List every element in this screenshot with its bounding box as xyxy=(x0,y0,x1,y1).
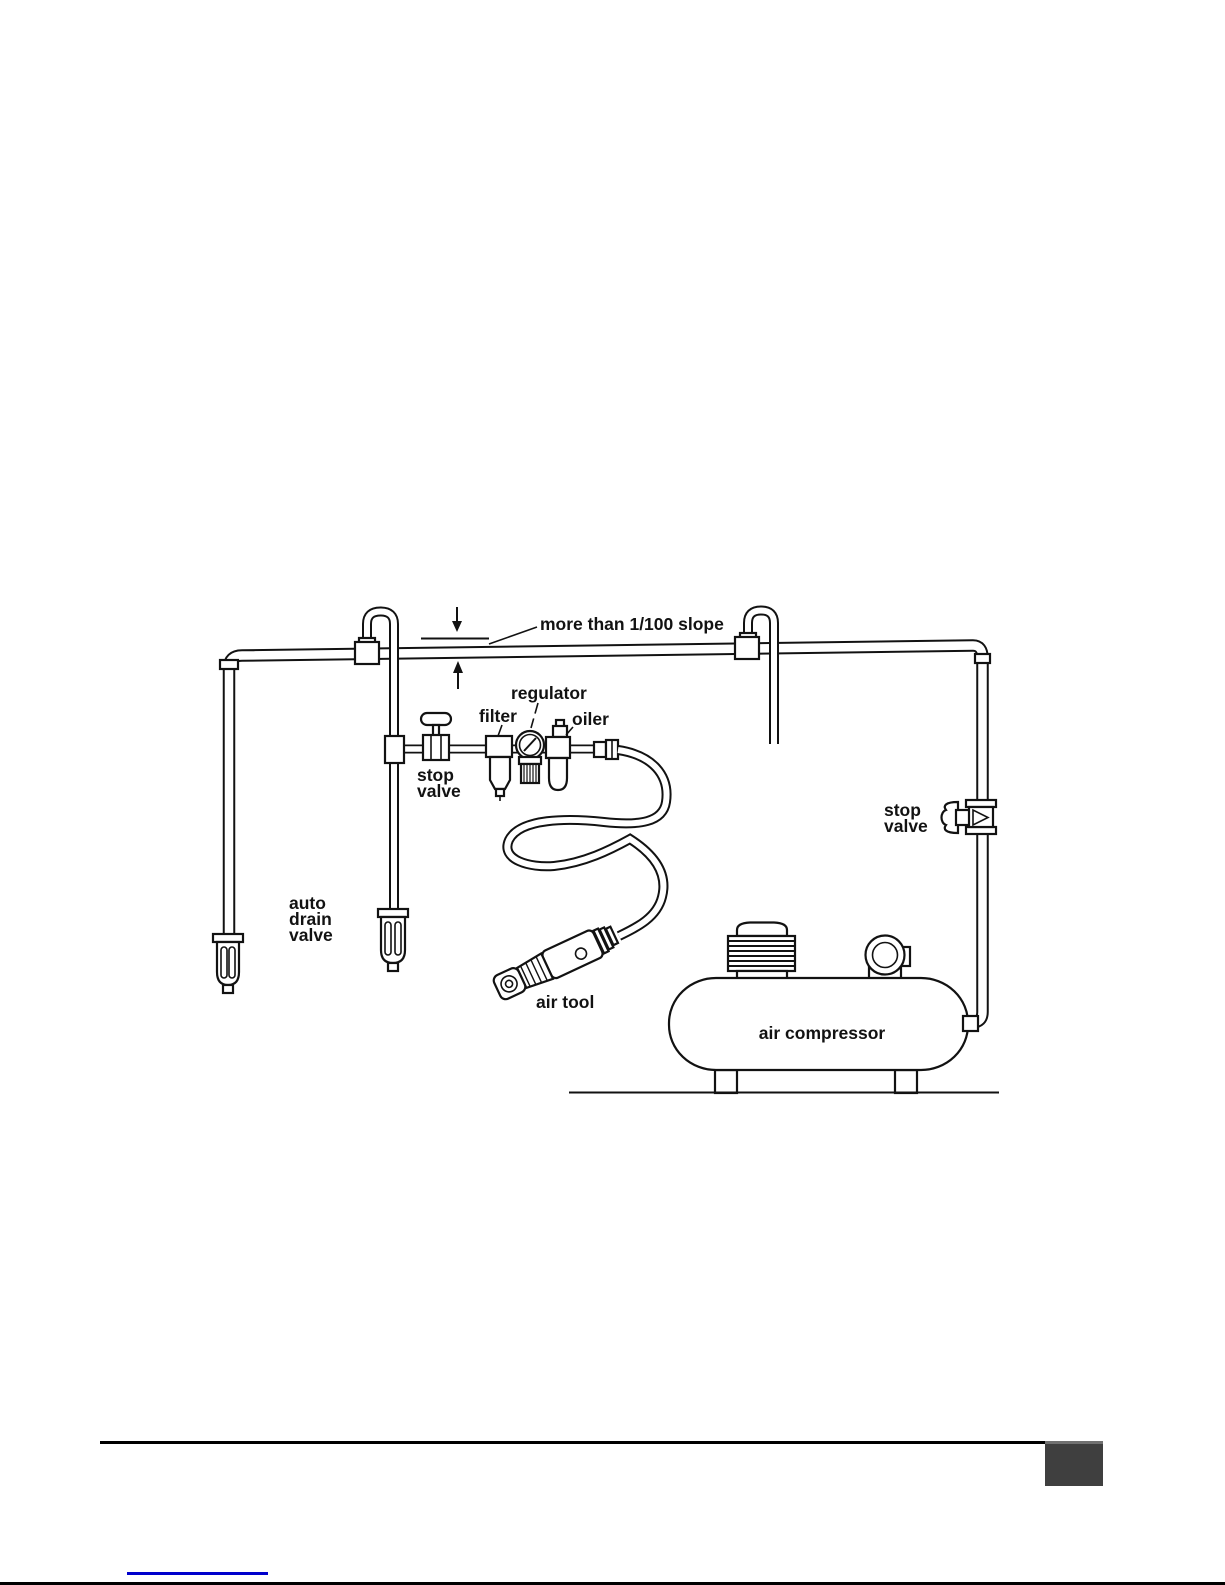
air-compressor: air compressor xyxy=(569,923,999,1094)
drain-valve-nub xyxy=(223,985,233,993)
air-tool-label: air tool xyxy=(536,992,594,1012)
coupler-sleeve xyxy=(594,742,606,757)
compressor-cylinder-head xyxy=(728,923,795,981)
tank-leg-right xyxy=(895,1070,917,1093)
oiler-unit xyxy=(546,720,570,790)
valve-handle xyxy=(421,713,451,725)
regulator-leader-line xyxy=(531,703,538,728)
filter-bowl xyxy=(490,757,510,789)
oiler-fill-cap xyxy=(553,726,567,737)
loop1-tee-fitting xyxy=(355,642,379,664)
motor-housing-inner xyxy=(873,943,898,968)
cylinder-head-dome xyxy=(737,923,787,937)
regulator-unit xyxy=(516,731,544,783)
air-compressor-label: air compressor xyxy=(759,1023,886,1043)
hose-coupler xyxy=(594,740,618,759)
drain-valve-nub xyxy=(388,963,398,971)
drain-valve-slot xyxy=(229,947,235,978)
tank-leg-left xyxy=(715,1070,737,1093)
air-tool xyxy=(491,921,621,1003)
auto-drain-valve-label-line3: valve xyxy=(289,925,333,945)
page-number-marker xyxy=(1045,1441,1103,1486)
slope-label: more than 1/100 slope xyxy=(540,614,724,634)
slope-leader-line xyxy=(489,627,537,644)
filter-label: filter xyxy=(479,706,517,726)
stop-valve-station xyxy=(421,713,451,760)
stop-valve-compressor-label: stop valve xyxy=(884,800,928,836)
drain-valve-slot xyxy=(385,922,391,955)
footer-rule xyxy=(100,1441,1045,1444)
filter-leader-line xyxy=(498,725,502,736)
footer-link-underline[interactable] xyxy=(127,1572,268,1575)
valve-body xyxy=(423,735,449,760)
left-elbow-collar xyxy=(220,660,238,669)
stop-valve-station-label: stop valve xyxy=(417,765,461,801)
filter-drain-nub xyxy=(496,789,504,796)
stop-valve-station-label-line2: valve xyxy=(417,781,461,801)
auto-drain-valve-station xyxy=(378,909,408,971)
stop-valve-compressor xyxy=(942,800,997,834)
loop2-tee-fitting xyxy=(735,637,759,659)
piping-diagram: air compressor xyxy=(0,0,1225,1585)
stop-valve-compressor-label-line2: valve xyxy=(884,816,928,836)
oiler-label: oiler xyxy=(572,709,609,729)
drain-valve-slot xyxy=(221,947,227,978)
right-pipe-collar xyxy=(975,654,990,663)
oiler-bowl xyxy=(549,758,567,790)
filter-unit xyxy=(486,736,512,801)
slope-arrow-down-head xyxy=(452,621,462,632)
manual-page: air compressor xyxy=(0,0,1225,1585)
auto-drain-valve-left xyxy=(213,934,243,993)
drain-valve-flange xyxy=(213,934,243,942)
tank-inlet-fitting xyxy=(963,1016,978,1031)
branch-tee-fitting xyxy=(385,736,404,763)
auto-drain-valve-label: auto drain valve xyxy=(289,893,333,945)
regulator-label: regulator xyxy=(511,683,587,703)
compressor-motor xyxy=(866,936,911,981)
filter-head xyxy=(486,736,512,757)
expansion-loop-2-outline xyxy=(748,611,774,745)
oiler-head xyxy=(546,737,570,758)
drain-valve-slot xyxy=(395,922,401,955)
drain-valve-flange xyxy=(378,909,408,917)
